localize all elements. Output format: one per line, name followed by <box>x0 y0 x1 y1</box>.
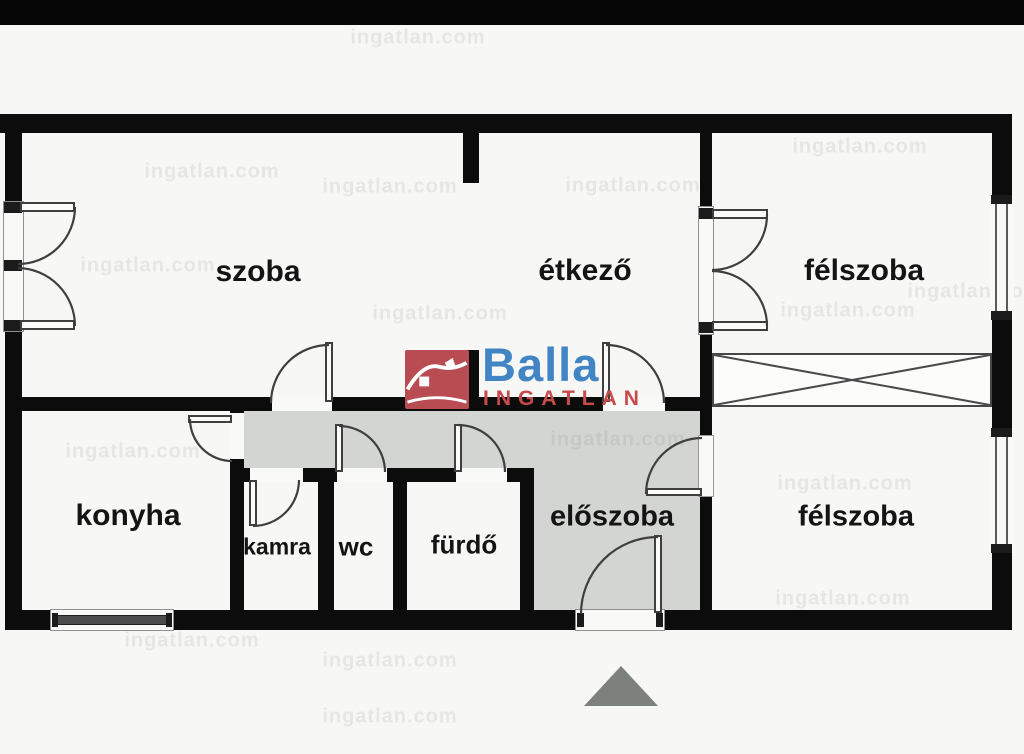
arc-french-bottom <box>18 268 75 326</box>
arc-furdo-door <box>458 425 505 472</box>
arc-double-top <box>712 215 767 270</box>
room-label-szoba: szoba <box>215 255 300 289</box>
room-label-felszoba-bottom: félszoba <box>798 501 914 534</box>
room-label-konyha: konyha <box>75 499 180 533</box>
arc-felszoba-bottom-door <box>646 438 702 494</box>
arc-french-top <box>18 207 75 264</box>
logo-house-box <box>405 350 469 409</box>
room-label-wc: wc <box>339 532 374 563</box>
arc-wc-door <box>339 426 385 472</box>
arc-konyha-door <box>190 419 232 461</box>
arc-entrance-door <box>581 537 658 614</box>
room-label-etkezo: étkező <box>538 254 631 288</box>
room-label-furdo: fürdő <box>431 530 497 561</box>
orientation-triangle <box>584 666 658 706</box>
room-label-kamra: kamra <box>243 534 311 561</box>
arc-double-bottom <box>712 271 767 326</box>
arc-szoba-door <box>271 345 329 403</box>
logo-subtitle-text: INGATLAN <box>483 387 646 411</box>
agency-logo: Balla INGATLAN <box>403 343 653 415</box>
arc-kamra-door <box>253 480 299 526</box>
room-label-felszoba-top: félszoba <box>804 254 924 288</box>
house-icon <box>405 350 469 409</box>
logo-brand-text: Balla <box>482 337 599 392</box>
room-label-eloszoba: előszoba <box>550 501 674 534</box>
floor-plan: ingatlan.com ingatlan.com ingatlan.com i… <box>0 0 1024 754</box>
